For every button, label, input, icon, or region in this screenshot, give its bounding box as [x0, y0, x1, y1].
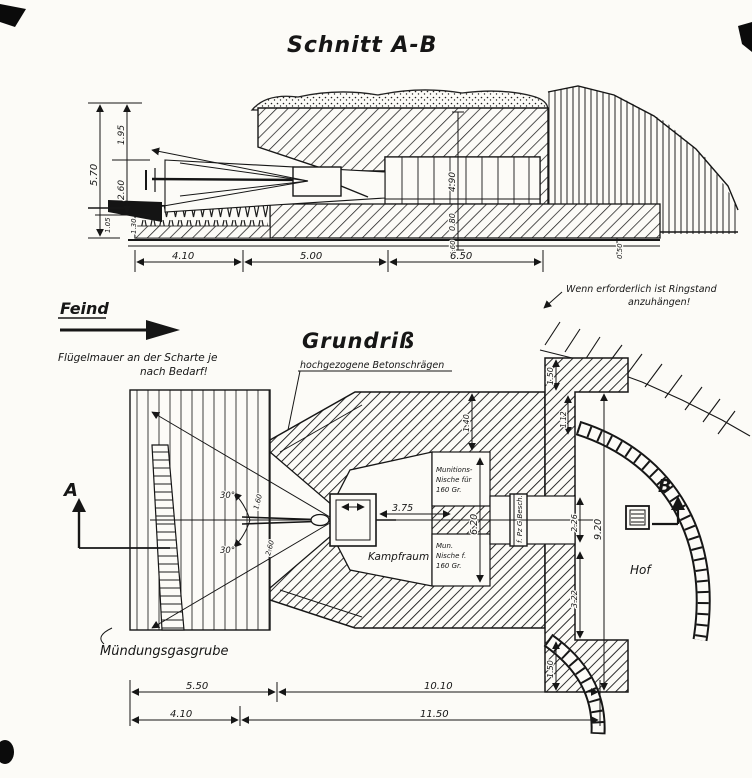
dim-rear-top: 2.26	[570, 514, 579, 532]
plan-title: Grundriß	[302, 329, 415, 353]
dim-rear: 6.50	[450, 251, 472, 262]
svg-text:Munitions-: Munitions-	[436, 466, 473, 474]
gas-pit-label: Mündungsgasgrube	[100, 644, 229, 659]
plan-view: Grundriß Feind Flügelmauer an der Schart…	[58, 284, 750, 734]
room-interior	[385, 157, 540, 204]
apron-hatch	[135, 226, 270, 238]
dim-flange-top: 1.50	[546, 367, 555, 385]
dim-front: 4.10	[172, 251, 194, 262]
dim-apron: 4.10	[170, 709, 192, 720]
svg-text:Mun.: Mun.	[436, 542, 453, 550]
svg-text:160 Gr.: 160 Gr.	[436, 562, 461, 570]
dim-pier: 9.20	[593, 519, 604, 540]
angle-upper: 30°	[220, 491, 235, 501]
fortification-drawing: Schnitt A-B	[0, 0, 752, 778]
fighting-room-label: Kampfraum	[368, 551, 429, 563]
dim-flange-bottom: 1.50	[546, 660, 555, 678]
note-wing-line1: Flügelmauer an der Scharte je	[58, 352, 217, 364]
dim-body-width: 10.10	[424, 681, 453, 692]
dim-small-b: 1.30	[130, 218, 138, 234]
courtyard-label: Hof	[630, 563, 652, 577]
dim-roof: 1.95	[117, 125, 127, 145]
enemy-label: Feind	[60, 299, 109, 318]
dim-front-width: 5.50	[186, 681, 208, 692]
note-slope: hochgezogene Betonschrägen	[300, 360, 444, 371]
dim-mid: 2.60	[117, 180, 127, 200]
dim-room: 5.00	[300, 251, 322, 262]
marker-a-label: A	[62, 480, 78, 501]
dim-small-a: 1.05	[104, 217, 112, 233]
floor-slab	[270, 204, 660, 238]
section-view: Schnitt A-B	[88, 33, 738, 272]
note-wing-line2: nach Bedarf!	[140, 366, 208, 378]
note-ring-line1: Wenn erforderlich ist Ringstand	[566, 284, 718, 295]
section-title: Schnitt A-B	[287, 33, 437, 58]
dim-gun-to-wall: 3.75	[392, 503, 413, 514]
dim-total-width: 11.50	[420, 709, 449, 720]
dim-wall-thick: 1.40	[462, 414, 471, 432]
svg-text:Nische für: Nische für	[436, 476, 473, 484]
svg-text:160 Gr.: 160 Gr.	[436, 486, 461, 494]
blueprint-page: Schnitt A-B	[0, 0, 752, 778]
enemy-direction: Feind	[58, 299, 180, 340]
section-bottom-dims: 4.10 5.00 6.50	[135, 250, 543, 272]
angle-lower: 30°	[220, 546, 235, 556]
marker-b-label: B	[658, 476, 672, 497]
gas-pit-area	[130, 390, 270, 630]
note-ring-line2: anzuhängen!	[628, 297, 691, 308]
dim-base-right: 0.50	[616, 243, 624, 259]
enemy-arrow-icon	[146, 320, 180, 340]
gas-pit-label-group: Mündungsgasgrube	[100, 628, 229, 659]
dim-interior: 4.90	[448, 172, 458, 192]
dim-niche-wall: 6.20	[469, 514, 480, 535]
dim-rear-bottom: 3.22	[570, 590, 579, 608]
plan-bottom-dims: 5.50 10.10 4.10 11.50	[130, 680, 600, 726]
svg-text:Nische f.: Nische f.	[436, 552, 466, 560]
dim-total-height: 5.70	[89, 164, 100, 186]
door-label: f. Pz G Besch.	[516, 495, 524, 543]
dim-gap-top: 1.12	[559, 411, 568, 428]
earth-mound	[252, 90, 548, 110]
dim-floor: 0.80	[448, 213, 457, 231]
